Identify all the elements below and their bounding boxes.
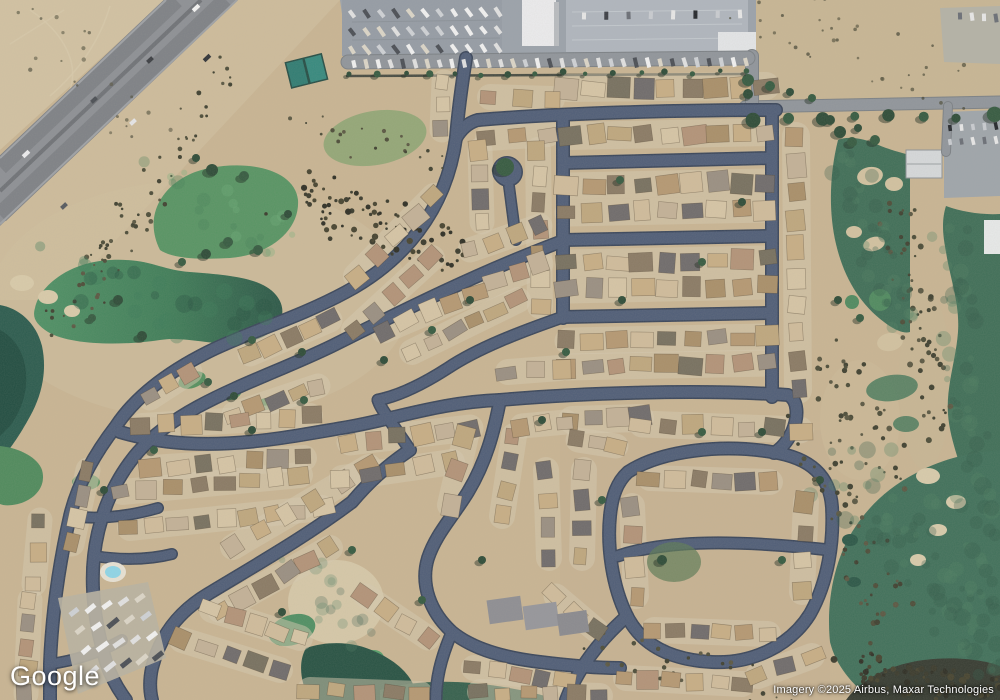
imagery-grain bbox=[0, 0, 1000, 700]
aerial-imagery bbox=[0, 0, 1000, 700]
satellite-map[interactable] bbox=[0, 0, 1000, 700]
imagery-attribution: Imagery ©2025 Airbus, Maxar Technologies bbox=[773, 684, 994, 696]
google-logo[interactable]: Google bbox=[10, 661, 100, 692]
